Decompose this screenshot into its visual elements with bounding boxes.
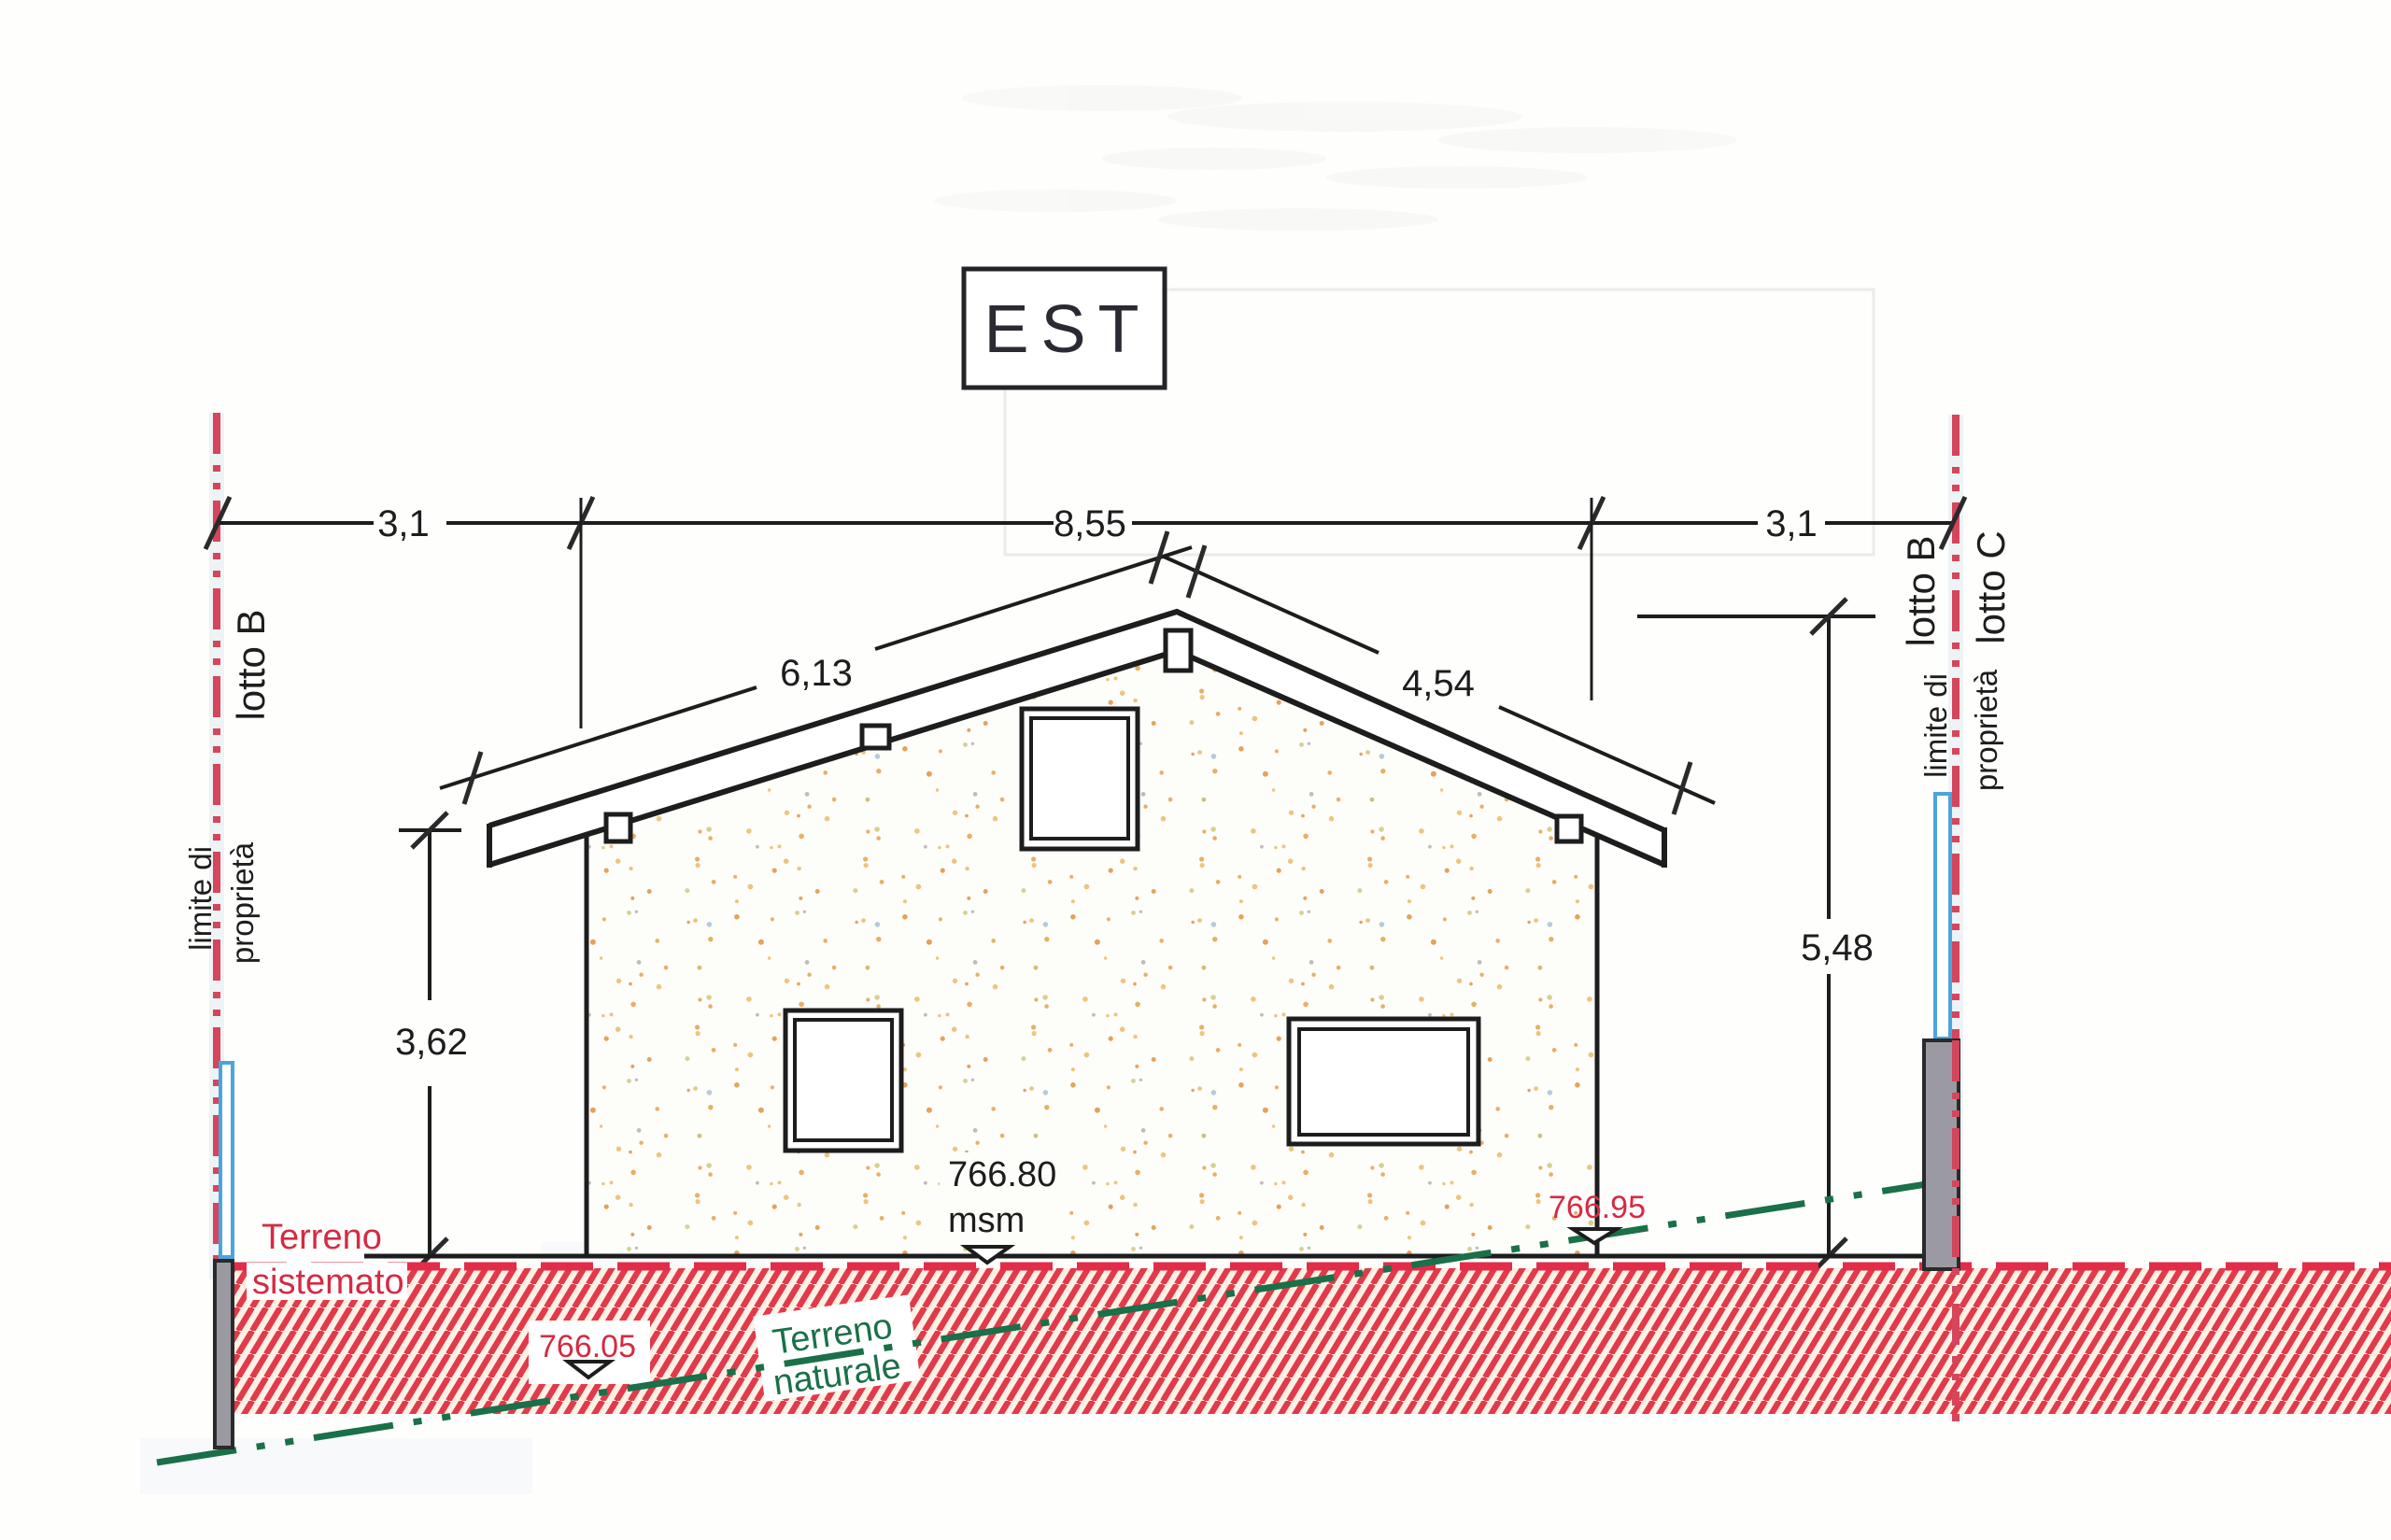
svg-text:3,1: 3,1 [377, 503, 430, 544]
svg-text:proprietà: proprietà [1969, 669, 2003, 791]
svg-text:proprietà: proprietà [225, 841, 260, 964]
svg-text:lotto B: lotto B [1899, 535, 1943, 646]
svg-text:limite di: limite di [1918, 673, 1953, 778]
svg-text:limite di: limite di [183, 846, 218, 951]
svg-text:4,54: 4,54 [1402, 663, 1475, 704]
svg-text:lotto B: lotto B [229, 609, 273, 720]
svg-text:766.80: 766.80 [948, 1155, 1056, 1194]
svg-text:3,62: 3,62 [395, 1022, 468, 1063]
svg-text:766.05: 766.05 [539, 1329, 636, 1364]
svg-text:Terreno: Terreno [262, 1218, 382, 1257]
svg-text:lotto C: lotto C [1969, 530, 2013, 643]
svg-text:766.95: 766.95 [1549, 1190, 1646, 1225]
svg-text:6,13: 6,13 [780, 653, 853, 694]
svg-text:8,55: 8,55 [1054, 503, 1126, 544]
svg-text:sistemato: sistemato [252, 1263, 404, 1302]
svg-text:msm: msm [948, 1201, 1025, 1240]
svg-text:5,48: 5,48 [1801, 927, 1874, 968]
svg-text:EST: EST [983, 292, 1151, 367]
svg-text:3,1: 3,1 [1765, 503, 1818, 544]
